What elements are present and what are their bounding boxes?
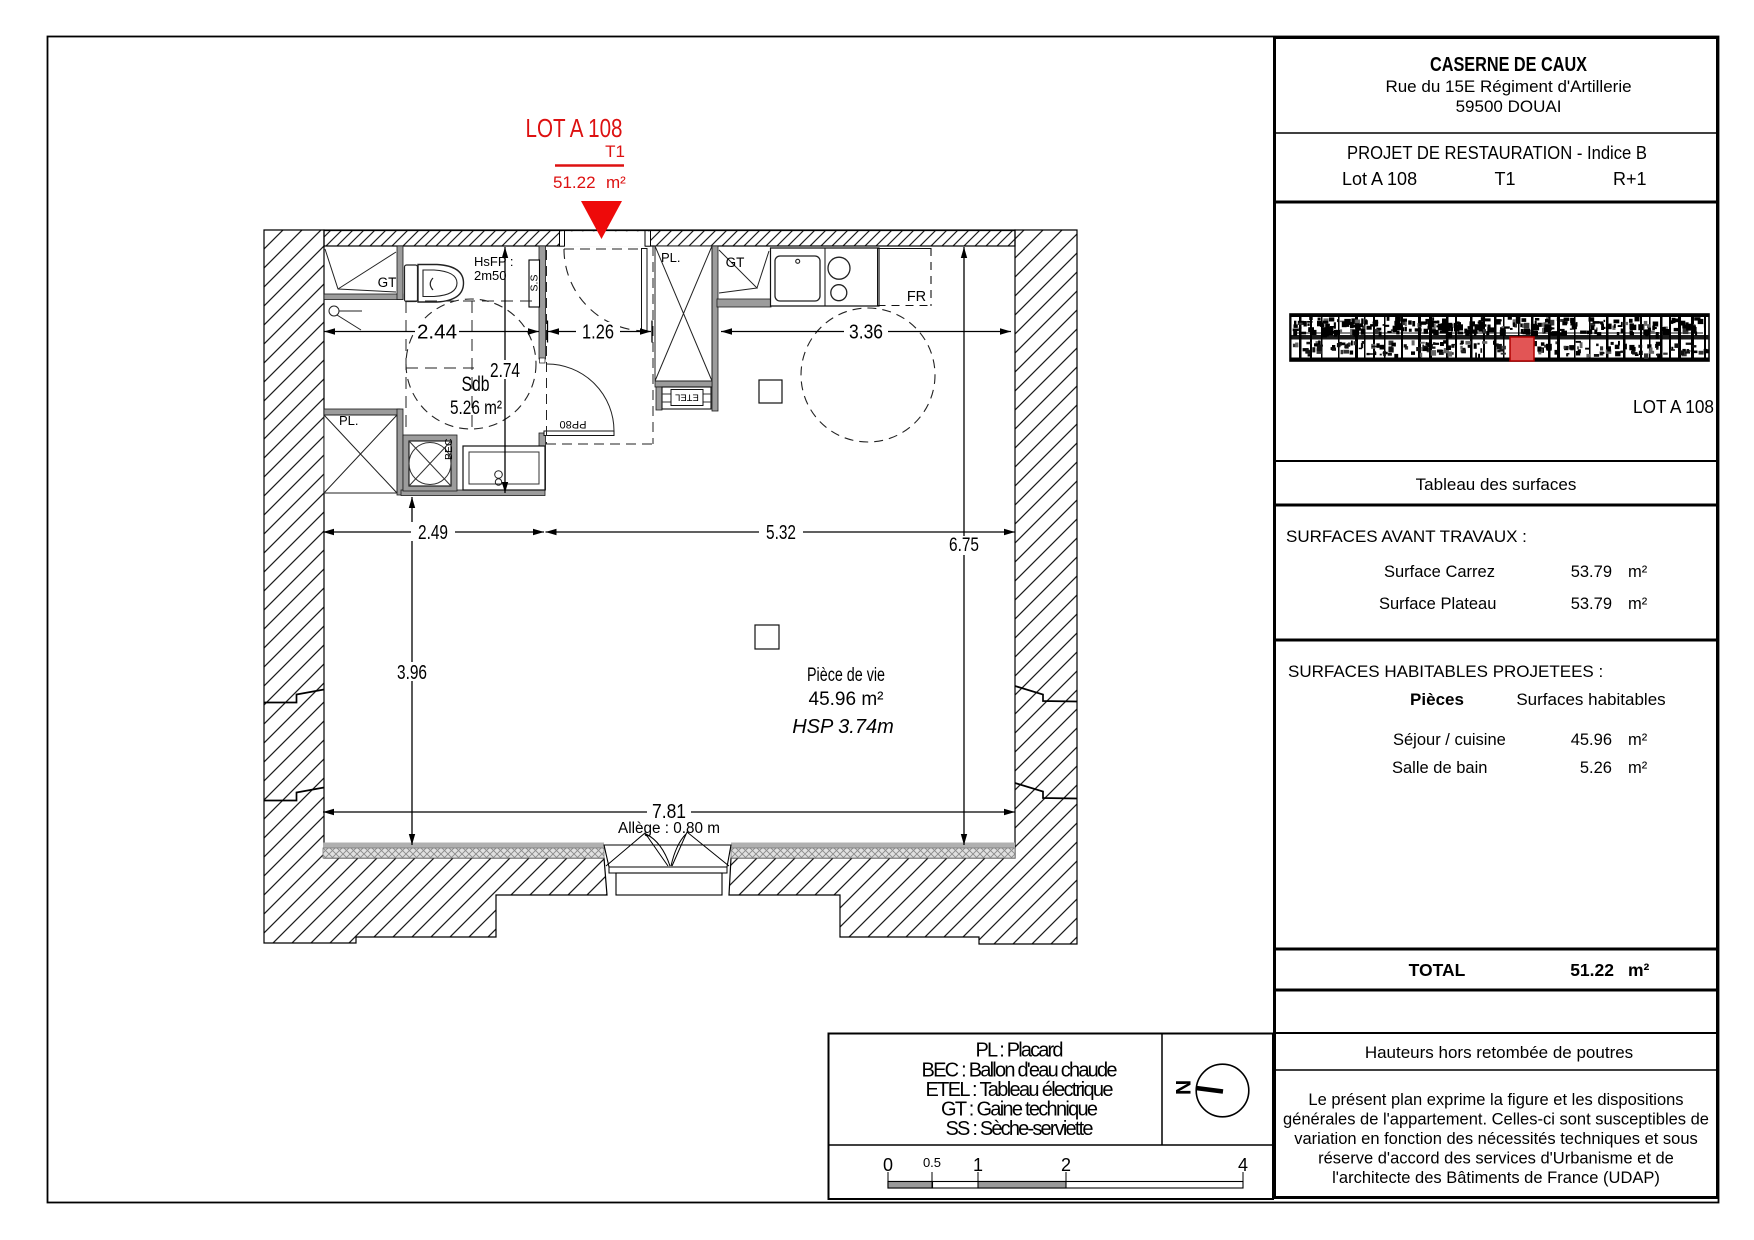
svg-text:ETEL: ETEL <box>675 392 699 403</box>
svg-text:m²: m² <box>1628 595 1648 613</box>
svg-text:SURFACES HABITABLES PROJETEES: SURFACES HABITABLES PROJETEES : <box>1288 662 1603 681</box>
svg-text:51.22: 51.22 <box>1570 960 1614 980</box>
svg-text:Surface Plateau: Surface Plateau <box>1379 595 1496 613</box>
svg-text:l'architecte des Bâtiments de: l'architecte des Bâtiments de France (UD… <box>1332 1169 1660 1187</box>
svg-text:4: 4 <box>1238 1155 1248 1175</box>
svg-text:Surface Carrez: Surface Carrez <box>1384 563 1495 581</box>
svg-text:LOT A 108: LOT A 108 <box>1633 397 1714 417</box>
svg-text:PL.: PL. <box>661 250 681 265</box>
svg-text:53.79: 53.79 <box>1571 563 1612 581</box>
svg-text:Le présent plan exprime la fig: Le présent plan exprime la figure et les… <box>1308 1091 1683 1109</box>
svg-text:S.S: S.S <box>529 275 541 292</box>
svg-text:2.44: 2.44 <box>417 321 457 344</box>
svg-text:3.96: 3.96 <box>397 661 427 684</box>
svg-text:générales de l'appartement. Ce: générales de l'appartement. Celles-ci so… <box>1283 1111 1709 1129</box>
svg-text:1.26: 1.26 <box>582 321 614 344</box>
svg-text:m²: m² <box>1628 759 1648 777</box>
svg-text:TOTAL: TOTAL <box>1409 960 1466 980</box>
svg-text:0: 0 <box>883 1155 893 1175</box>
svg-text:6.75: 6.75 <box>949 535 979 556</box>
svg-text:PL : Placard: PL : Placard <box>976 1040 1064 1062</box>
svg-text:PROJET DE RESTAURATION - Indic: PROJET DE RESTAURATION - Indice B <box>1347 143 1647 163</box>
svg-text:PL.: PL. <box>339 413 359 428</box>
svg-text:GT: GT <box>726 255 745 270</box>
svg-text:Sdb: Sdb <box>462 373 490 396</box>
svg-text:Rue du 15E Régiment d'Artiller: Rue du 15E Régiment d'Artillerie <box>1385 77 1631 96</box>
svg-text:Pièces: Pièces <box>1410 690 1464 709</box>
svg-text:m²: m² <box>1628 563 1648 581</box>
svg-text:5.26: 5.26 <box>1580 759 1612 777</box>
svg-text:2: 2 <box>1061 1155 1071 1175</box>
svg-text:Salle de bain: Salle de bain <box>1392 759 1487 777</box>
svg-text:5.32: 5.32 <box>766 521 796 544</box>
svg-text:LOT A 108: LOT A 108 <box>526 113 623 143</box>
svg-text:Lot A 108: Lot A 108 <box>1342 169 1417 189</box>
svg-text:5.26 m²: 5.26 m² <box>450 398 502 419</box>
svg-text:HSP 3.74m: HSP 3.74m <box>792 716 894 738</box>
svg-text:m²: m² <box>1628 731 1648 749</box>
svg-text:SURFACES AVANT TRAVAUX :: SURFACES AVANT TRAVAUX : <box>1286 527 1527 546</box>
svg-text:CASERNE DE CAUX: CASERNE DE CAUX <box>1430 54 1588 76</box>
svg-text:Pièce de vie: Pièce de vie <box>807 665 885 686</box>
svg-text:N: N <box>1173 1080 1196 1095</box>
svg-text:R+1: R+1 <box>1613 169 1647 189</box>
svg-text:45.96: 45.96 <box>1571 731 1612 749</box>
svg-text:variation en fonction des néce: variation en fonction des nécessités tec… <box>1294 1130 1698 1148</box>
svg-text:FR: FR <box>907 289 926 305</box>
svg-text:Tableau des surfaces: Tableau des surfaces <box>1416 475 1577 494</box>
svg-text:T1: T1 <box>1494 169 1515 189</box>
svg-text:m²: m² <box>1628 960 1650 980</box>
svg-text:Surfaces habitables: Surfaces habitables <box>1516 690 1665 709</box>
svg-text:59500 DOUAI: 59500 DOUAI <box>1456 97 1562 116</box>
svg-text:HsFP :: HsFP : <box>474 254 514 269</box>
svg-text:3.36: 3.36 <box>849 321 883 344</box>
svg-text:45.96 m²: 45.96 m² <box>809 689 884 710</box>
svg-text:PP80: PP80 <box>560 418 587 430</box>
svg-text:Séjour / cuisine: Séjour / cuisine <box>1393 731 1506 749</box>
svg-text:53.79: 53.79 <box>1571 595 1612 613</box>
svg-text:51.22: 51.22 <box>553 173 596 192</box>
svg-text:m²: m² <box>606 173 626 192</box>
svg-text:0.5: 0.5 <box>923 1155 941 1170</box>
svg-text:Allège : 0.80 m: Allège : 0.80 m <box>618 820 720 837</box>
svg-text:réserve d'accord des services: réserve d'accord des services d'Urbanism… <box>1318 1150 1674 1168</box>
svg-text:Hauteurs hors retombée de pout: Hauteurs hors retombée de poutres <box>1365 1043 1633 1062</box>
svg-text:T1: T1 <box>605 142 625 161</box>
svg-text:1: 1 <box>973 1155 983 1175</box>
svg-text:GT: GT <box>378 275 397 290</box>
svg-text:2.74: 2.74 <box>490 359 520 382</box>
svg-text:SS : Sèche-serviette: SS : Sèche-serviette <box>946 1118 1094 1140</box>
svg-text:2m50: 2m50 <box>474 268 507 283</box>
svg-text:BEC: BEC <box>443 438 455 460</box>
svg-text:2.49: 2.49 <box>418 521 448 544</box>
